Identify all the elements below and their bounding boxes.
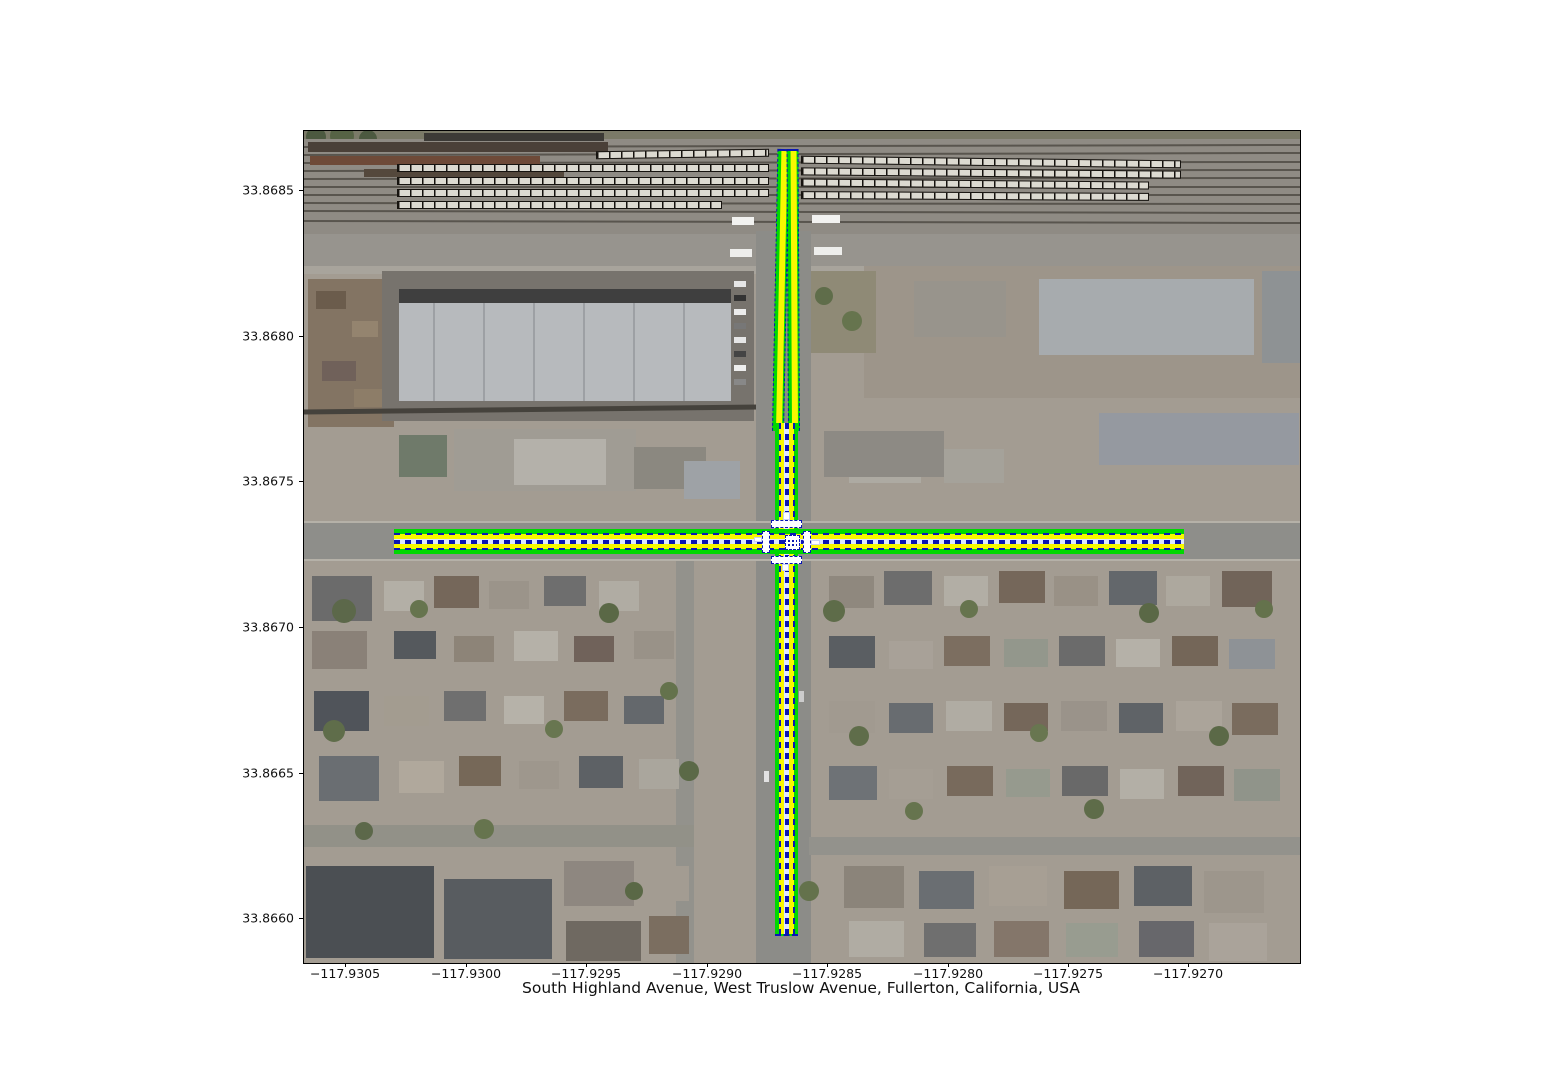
figure-title: South Highland Avenue, West Truslow Aven… [303, 979, 1299, 997]
crosswalk-south [771, 556, 802, 564]
crosswalk-east [803, 531, 811, 553]
stop-line-east [811, 540, 820, 545]
map-axes [303, 130, 1301, 964]
crosswalk-west [762, 531, 770, 553]
y-tick-label: 33.8680 [0, 329, 294, 344]
railcar-row [397, 201, 722, 209]
y-tick-label: 33.8665 [0, 766, 294, 781]
railcar-row [397, 189, 769, 197]
stop-line-south [782, 564, 789, 571]
crosswalk-north [771, 520, 802, 528]
junction-box [785, 535, 800, 550]
y-tick-label: 33.8675 [0, 474, 294, 489]
stop-line-north [783, 512, 790, 520]
y-tick-label: 33.8670 [0, 620, 294, 635]
y-tick [299, 773, 303, 774]
map-figure: 33.8685 33.8680 33.8675 33.8670 33.8665 … [0, 0, 1560, 1080]
y-tick [299, 481, 303, 482]
railcar-row [397, 164, 769, 172]
highland-avenue-southbound-lanes [787, 149, 800, 431]
south-highland-avenue-lanes [775, 423, 798, 936]
stop-line-west [754, 537, 762, 542]
y-tick [299, 190, 303, 191]
y-tick-label: 33.8685 [0, 183, 294, 198]
y-tick [299, 627, 303, 628]
y-tick [299, 336, 303, 337]
railcar-row [397, 177, 769, 185]
y-tick [299, 918, 303, 919]
y-tick-label: 33.8660 [0, 911, 294, 926]
